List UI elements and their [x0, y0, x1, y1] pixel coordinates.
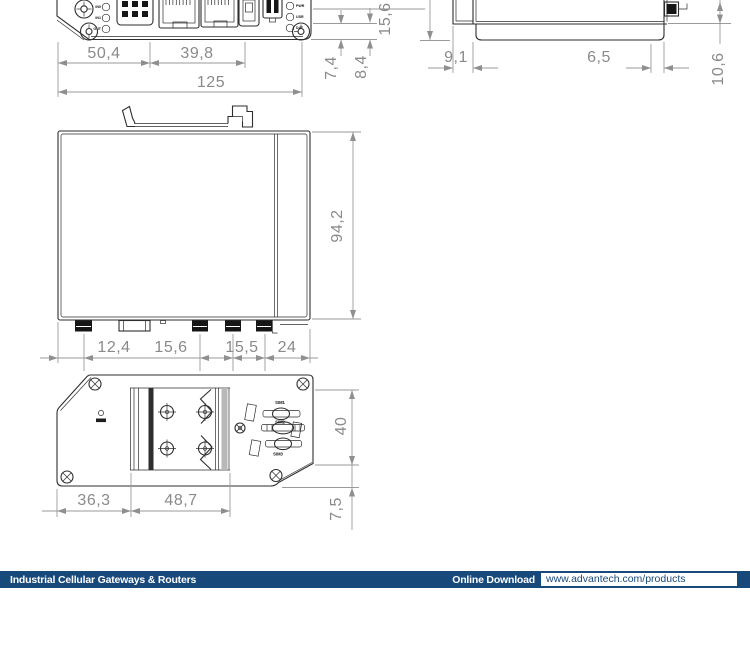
status-led-group: PWR USR DAT: [286, 2, 305, 32]
corner-screw: [270, 470, 282, 482]
dim-bottom-offset: 7,5: [328, 497, 345, 521]
status-led-label: USR: [296, 15, 304, 19]
datasheet-dimension-page: IN0 IN1 OUT: [0, 0, 750, 650]
dim-bottom-1: 12,4: [97, 339, 130, 356]
dim-profile-height: 94,2: [329, 209, 346, 242]
side-view: 15,6 9,1 6,5 10,6: [377, 0, 731, 86]
serial-connector: [263, 0, 282, 22]
rj45-port-2: [201, 0, 238, 27]
sim-eject-slider-1: [263, 408, 300, 420]
dim-bottom-height: 40: [333, 417, 350, 436]
footer-download-label: Online Download: [452, 574, 535, 586]
front-view-dimensions: 50,4 39,8 125 7,4 8,4: [58, 8, 425, 97]
technical-drawing: IN0 IN1 OUT: [0, 0, 750, 565]
footer-bar: Industrial Cellular Gateways & Routers O…: [0, 571, 750, 588]
dim-bottom-3: 15,5: [225, 339, 258, 356]
corner-screw: [89, 378, 101, 390]
ground-point: [96, 410, 106, 422]
bottom-view: SIM1 SIM2 SIM3 36,3 48,7 40 7,5: [42, 375, 359, 530]
dim-din-plate: 48,7: [164, 492, 197, 509]
dim-bottom-left: 36,3: [77, 492, 110, 509]
profile-body-outline: [58, 131, 310, 320]
io-led-label: IN1: [95, 16, 101, 20]
antenna-connector-left: [75, 0, 93, 18]
sim-label: SIM3: [273, 452, 283, 457]
dim-front-width-left: 50,4: [87, 45, 120, 62]
footer-category-label: Industrial Cellular Gateways & Routers: [10, 574, 196, 586]
sim-cover-screw: [235, 423, 245, 433]
dim-side-height: 15,6: [377, 2, 394, 35]
power-connector: [117, 0, 153, 25]
dim-side-d1: 9,1: [444, 49, 468, 66]
rj45-port-1: [159, 0, 199, 28]
plate-screw: [158, 440, 176, 458]
corner-screw: [61, 471, 73, 483]
sim-bracket: [249, 440, 260, 456]
bottom-antenna-connectors: [75, 321, 308, 334]
sim-label: SIM1: [275, 400, 285, 405]
footer-download-url: www.advantech.com/products: [541, 573, 737, 586]
sim-slot-area: SIM1 SIM2 SIM3: [235, 400, 305, 457]
dim-offset-1: 7,4: [323, 56, 340, 80]
dim-front-width-mid: 39,8: [180, 45, 213, 62]
profile-view: 94,2 12,4 15,6 15,5 24: [40, 106, 361, 371]
sim-label: SIM2: [275, 420, 285, 425]
antenna-connector-left2: [81, 23, 98, 40]
ground-label-mark: [96, 419, 106, 423]
corner-screw: [297, 378, 309, 390]
dim-bottom-4: 24: [278, 339, 297, 356]
plate-screw: [158, 403, 176, 421]
sim-eject-slider-3: [266, 438, 302, 450]
status-led-label: PWR: [296, 4, 305, 8]
sim-bracket: [245, 404, 257, 421]
profile-view-dimensions: 94,2 12,4 15,6 15,5 24: [40, 132, 361, 371]
side-antenna-connector: [665, 2, 688, 16]
antenna-connector-right: [293, 23, 310, 40]
din-rail-clip: [123, 106, 253, 127]
io-led-label: IN0: [95, 5, 101, 9]
plate-screw: [196, 440, 214, 458]
side-view-dimensions: 15,6 9,1 6,5 10,6: [377, 0, 731, 86]
dim-offset-2: 8,4: [353, 55, 370, 79]
plate-screw: [196, 403, 214, 421]
din-mount-plate: [130, 388, 230, 470]
dim-front-width-total: 125: [197, 74, 225, 91]
io-led-group: IN0 IN1 OUT: [93, 3, 109, 33]
usb-port: [239, 0, 259, 26]
dim-side-v: 10,6: [710, 52, 727, 85]
dim-side-d2: 6,5: [587, 49, 611, 66]
front-view: IN0 IN1 OUT: [57, 0, 425, 97]
dim-bottom-2: 15,6: [154, 339, 187, 356]
